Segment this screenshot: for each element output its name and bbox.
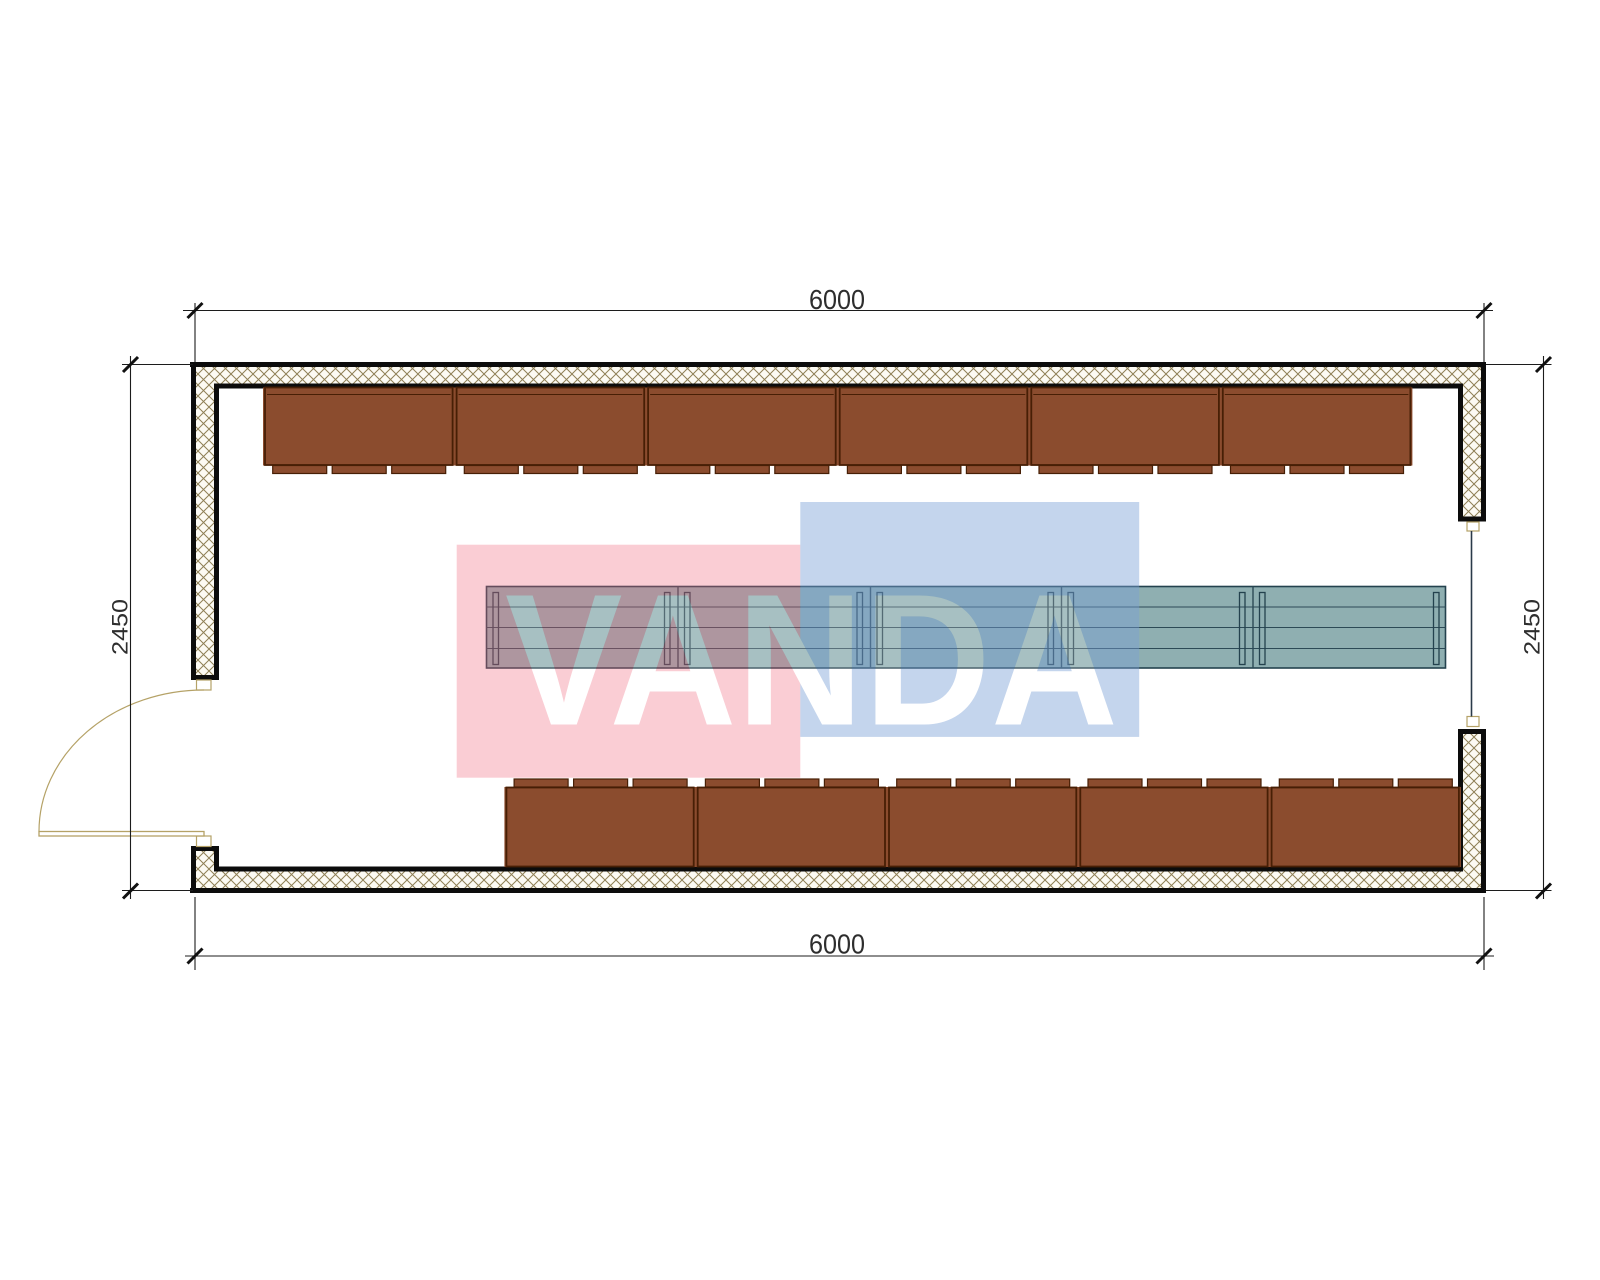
svg-text:2450: 2450 [108,599,133,655]
svg-text:2450: 2450 [1520,599,1545,655]
svg-text:6000: 6000 [809,929,865,960]
svg-text:6000: 6000 [809,284,865,315]
svg-text:VANDA: VANDA [505,555,1118,765]
